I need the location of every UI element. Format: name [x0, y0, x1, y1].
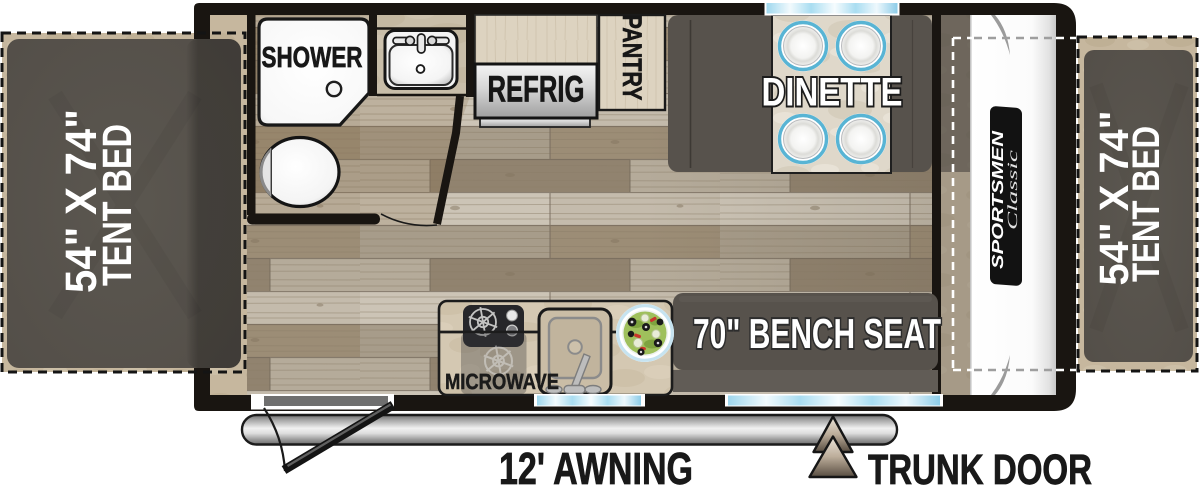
svg-text:12' AWNING: 12' AWNING [499, 443, 693, 485]
svg-text:SHOWER: SHOWER [262, 42, 363, 74]
svg-text:TENT BED: TENT BED [94, 124, 140, 286]
svg-text:TRUNK DOOR: TRUNK DOOR [868, 447, 1092, 485]
svg-text:PANTRY: PANTRY [617, 15, 647, 101]
svg-text:TENT BED: TENT BED [1125, 126, 1168, 282]
svg-text:DINETTE: DINETTE [762, 71, 903, 115]
svg-text:70" BENCH SEAT: 70" BENCH SEAT [693, 310, 941, 357]
svg-text:Classic: Classic [1006, 148, 1021, 230]
svg-text:SPORTSMEN: SPORTSMEN [990, 130, 1007, 269]
svg-text:REFRIG: REFRIG [488, 69, 585, 110]
svg-text:MICROWAVE: MICROWAVE [445, 369, 559, 394]
